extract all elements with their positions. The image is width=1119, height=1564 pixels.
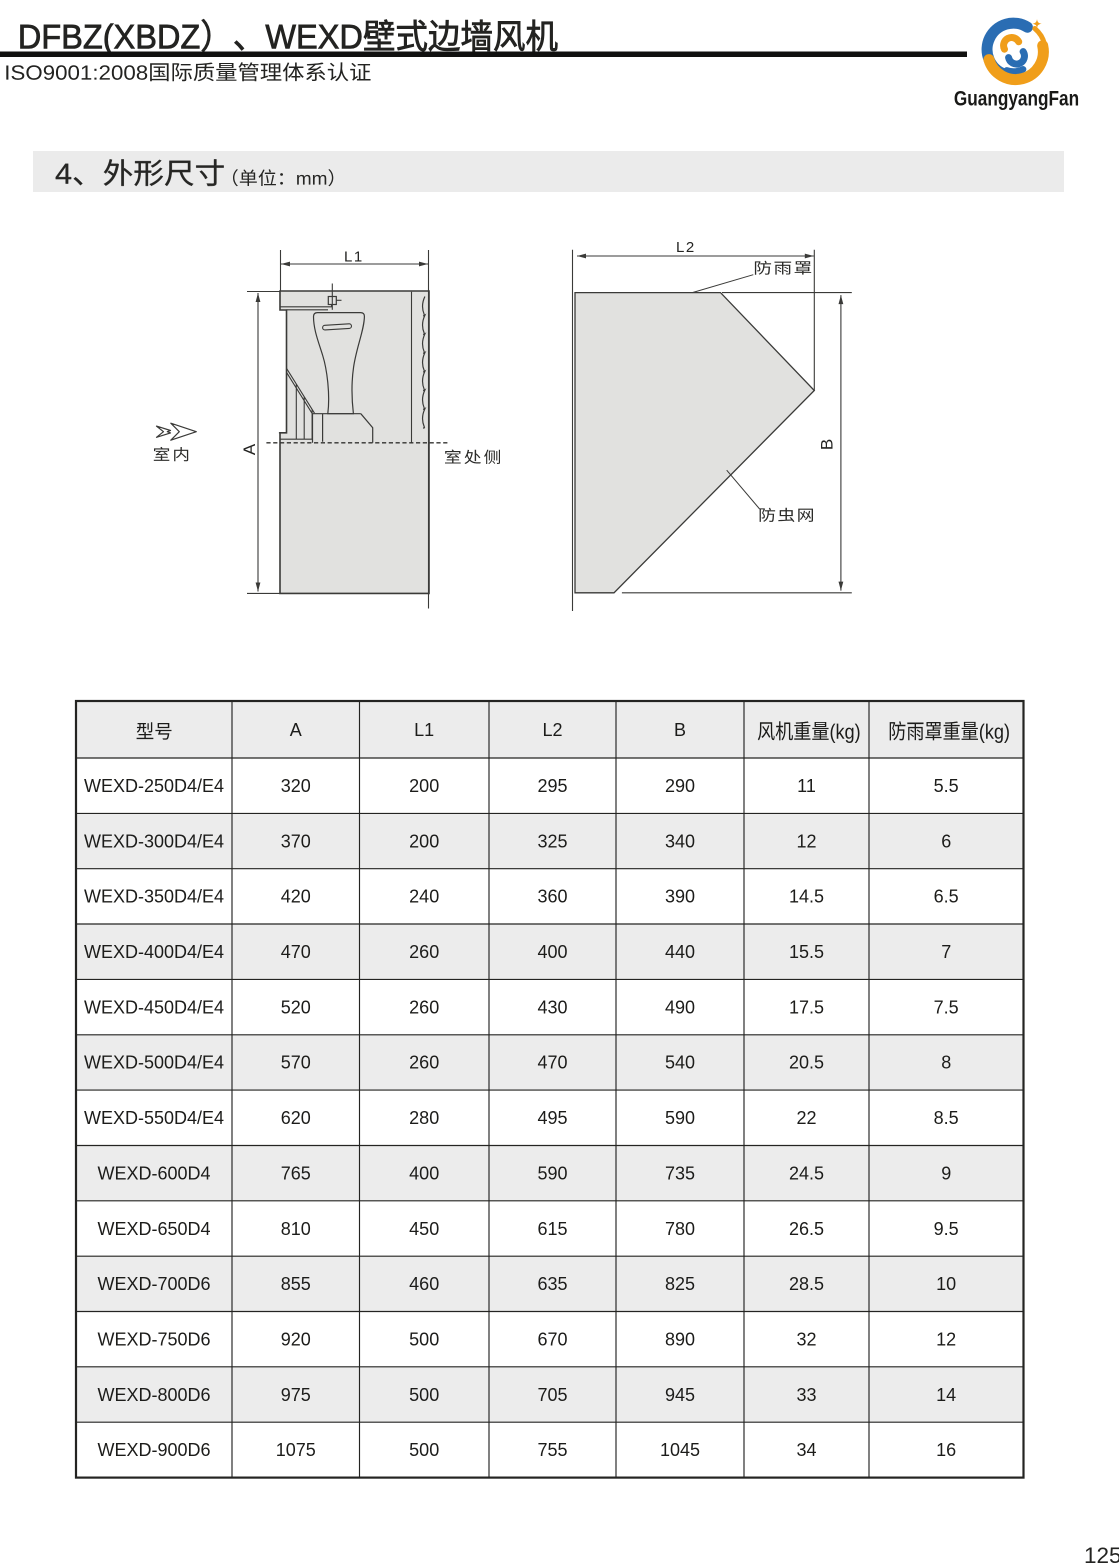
svg-text:WEXD-250D4/E4: WEXD-250D4/E4	[84, 776, 224, 796]
svg-text:14: 14	[936, 1385, 956, 1405]
svg-text:765: 765	[281, 1163, 311, 1183]
svg-text:17.5: 17.5	[789, 997, 824, 1017]
svg-text:WEXD-400D4/E4: WEXD-400D4/E4	[84, 942, 224, 962]
svg-text:825: 825	[665, 1274, 695, 1294]
svg-text:780: 780	[665, 1219, 695, 1239]
svg-text:32: 32	[796, 1330, 816, 1350]
svg-text:12: 12	[796, 831, 816, 851]
svg-text:10: 10	[936, 1274, 956, 1294]
svg-text:WEXD-350D4/E4: WEXD-350D4/E4	[84, 887, 224, 907]
svg-text:200: 200	[409, 776, 439, 796]
svg-text:WEXD-500D4/E4: WEXD-500D4/E4	[84, 1053, 224, 1073]
svg-text:B: B	[818, 439, 837, 450]
svg-text:450: 450	[409, 1219, 439, 1239]
svg-text:400: 400	[537, 942, 567, 962]
svg-text:260: 260	[409, 942, 439, 962]
svg-text:470: 470	[537, 1053, 567, 1073]
svg-text:34: 34	[796, 1440, 816, 1460]
svg-text:L1: L1	[414, 720, 434, 740]
svg-text:280: 280	[409, 1108, 439, 1128]
svg-text:L2: L2	[676, 239, 696, 256]
svg-text:495: 495	[537, 1108, 567, 1128]
svg-text:500: 500	[409, 1440, 439, 1460]
svg-text:240: 240	[409, 887, 439, 907]
svg-text:290: 290	[665, 776, 695, 796]
svg-text:12: 12	[936, 1330, 956, 1350]
svg-text:855: 855	[281, 1274, 311, 1294]
svg-text:L1: L1	[344, 249, 364, 266]
svg-text:1075: 1075	[276, 1440, 316, 1460]
svg-text:520: 520	[281, 997, 311, 1017]
svg-text:920: 920	[281, 1330, 311, 1350]
svg-text:735: 735	[665, 1163, 695, 1183]
svg-text:WEXD-300D4/E4: WEXD-300D4/E4	[84, 831, 224, 851]
svg-text:260: 260	[409, 997, 439, 1017]
svg-text:430: 430	[537, 997, 567, 1017]
svg-text:420: 420	[281, 887, 311, 907]
svg-text:GuangyangFan: GuangyangFan	[954, 88, 1079, 111]
svg-text:8: 8	[941, 1053, 951, 1073]
svg-text:540: 540	[665, 1053, 695, 1073]
svg-text:500: 500	[409, 1385, 439, 1405]
svg-text:28.5: 28.5	[789, 1274, 824, 1294]
svg-text:620: 620	[281, 1108, 311, 1128]
svg-text:470: 470	[281, 942, 311, 962]
svg-text:260: 260	[409, 1053, 439, 1073]
svg-text:390: 390	[665, 887, 695, 907]
svg-text:7.5: 7.5	[934, 997, 959, 1017]
svg-text:15.5: 15.5	[789, 942, 824, 962]
svg-text:B: B	[674, 720, 686, 740]
svg-text:755: 755	[537, 1440, 567, 1460]
svg-text:490: 490	[665, 997, 695, 1017]
svg-text:890: 890	[665, 1330, 695, 1350]
svg-text:9.5: 9.5	[934, 1219, 959, 1239]
svg-text:6.5: 6.5	[934, 887, 959, 907]
svg-text:7: 7	[941, 942, 951, 962]
svg-text:810: 810	[281, 1219, 311, 1239]
svg-text:22: 22	[796, 1108, 816, 1128]
svg-text:325: 325	[537, 831, 567, 851]
svg-text:1045: 1045	[660, 1440, 700, 1460]
svg-text:A: A	[290, 720, 302, 740]
svg-text:A: A	[240, 443, 259, 455]
svg-text:590: 590	[665, 1108, 695, 1128]
svg-text:WEXD-900D6: WEXD-900D6	[97, 1440, 210, 1460]
svg-text:16: 16	[936, 1440, 956, 1460]
svg-text:WEXD-550D4/E4: WEXD-550D4/E4	[84, 1108, 224, 1128]
svg-text:WEXD-650D4: WEXD-650D4	[97, 1219, 210, 1239]
svg-text:400: 400	[409, 1163, 439, 1183]
svg-text:945: 945	[665, 1385, 695, 1405]
svg-text:360: 360	[537, 887, 567, 907]
svg-text:440: 440	[665, 942, 695, 962]
svg-text:320: 320	[281, 776, 311, 796]
svg-text:24.5: 24.5	[789, 1163, 824, 1183]
svg-text:570: 570	[281, 1053, 311, 1073]
svg-text:460: 460	[409, 1274, 439, 1294]
svg-text:20.5: 20.5	[789, 1053, 824, 1073]
svg-text:WEXD-750D6: WEXD-750D6	[97, 1330, 210, 1350]
svg-text:705: 705	[537, 1385, 567, 1405]
svg-text:615: 615	[537, 1219, 567, 1239]
svg-text:125: 125	[1084, 1543, 1119, 1564]
svg-text:590: 590	[537, 1163, 567, 1183]
svg-text:200: 200	[409, 831, 439, 851]
svg-text:WEXD-600D4: WEXD-600D4	[97, 1163, 210, 1183]
svg-text:340: 340	[665, 831, 695, 851]
svg-text:5.5: 5.5	[934, 776, 959, 796]
svg-text:975: 975	[281, 1385, 311, 1405]
svg-text:6: 6	[941, 831, 951, 851]
svg-text:WEXD-700D6: WEXD-700D6	[97, 1274, 210, 1294]
svg-text:33: 33	[796, 1385, 816, 1405]
svg-text:295: 295	[537, 776, 567, 796]
svg-text:500: 500	[409, 1330, 439, 1350]
svg-text:11: 11	[797, 776, 816, 796]
svg-text:L2: L2	[542, 720, 562, 740]
svg-text:370: 370	[281, 831, 311, 851]
svg-text:635: 635	[537, 1274, 567, 1294]
svg-text:26.5: 26.5	[789, 1219, 824, 1239]
svg-text:8.5: 8.5	[934, 1108, 959, 1128]
svg-text:9: 9	[941, 1163, 951, 1183]
svg-text:WEXD-800D6: WEXD-800D6	[97, 1385, 210, 1405]
svg-text:WEXD-450D4/E4: WEXD-450D4/E4	[84, 997, 224, 1017]
svg-text:14.5: 14.5	[789, 887, 824, 907]
svg-text:670: 670	[537, 1330, 567, 1350]
